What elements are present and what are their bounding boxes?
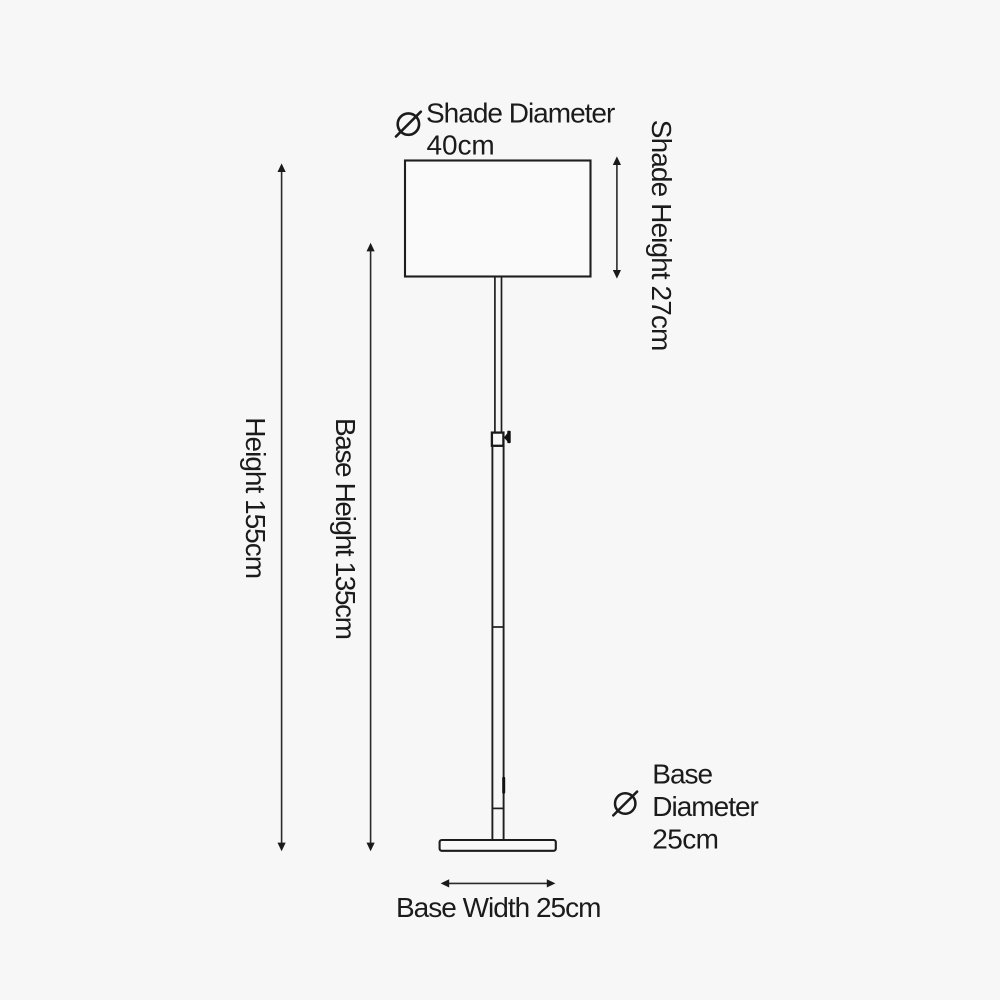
svg-text:40cm: 40cm	[427, 130, 495, 161]
svg-text:Base: Base	[652, 759, 712, 790]
svg-text:Height 155cm: Height 155cm	[240, 417, 271, 578]
svg-text:Base Width 25cm: Base Width 25cm	[396, 892, 600, 923]
svg-text:25cm: 25cm	[652, 824, 718, 855]
svg-text:Shade Height 27cm: Shade Height 27cm	[646, 120, 677, 351]
svg-text:Diameter: Diameter	[652, 791, 758, 822]
svg-text:Base Height 135cm: Base Height 135cm	[330, 418, 361, 639]
svg-text:Shade Diameter: Shade Diameter	[426, 97, 615, 128]
